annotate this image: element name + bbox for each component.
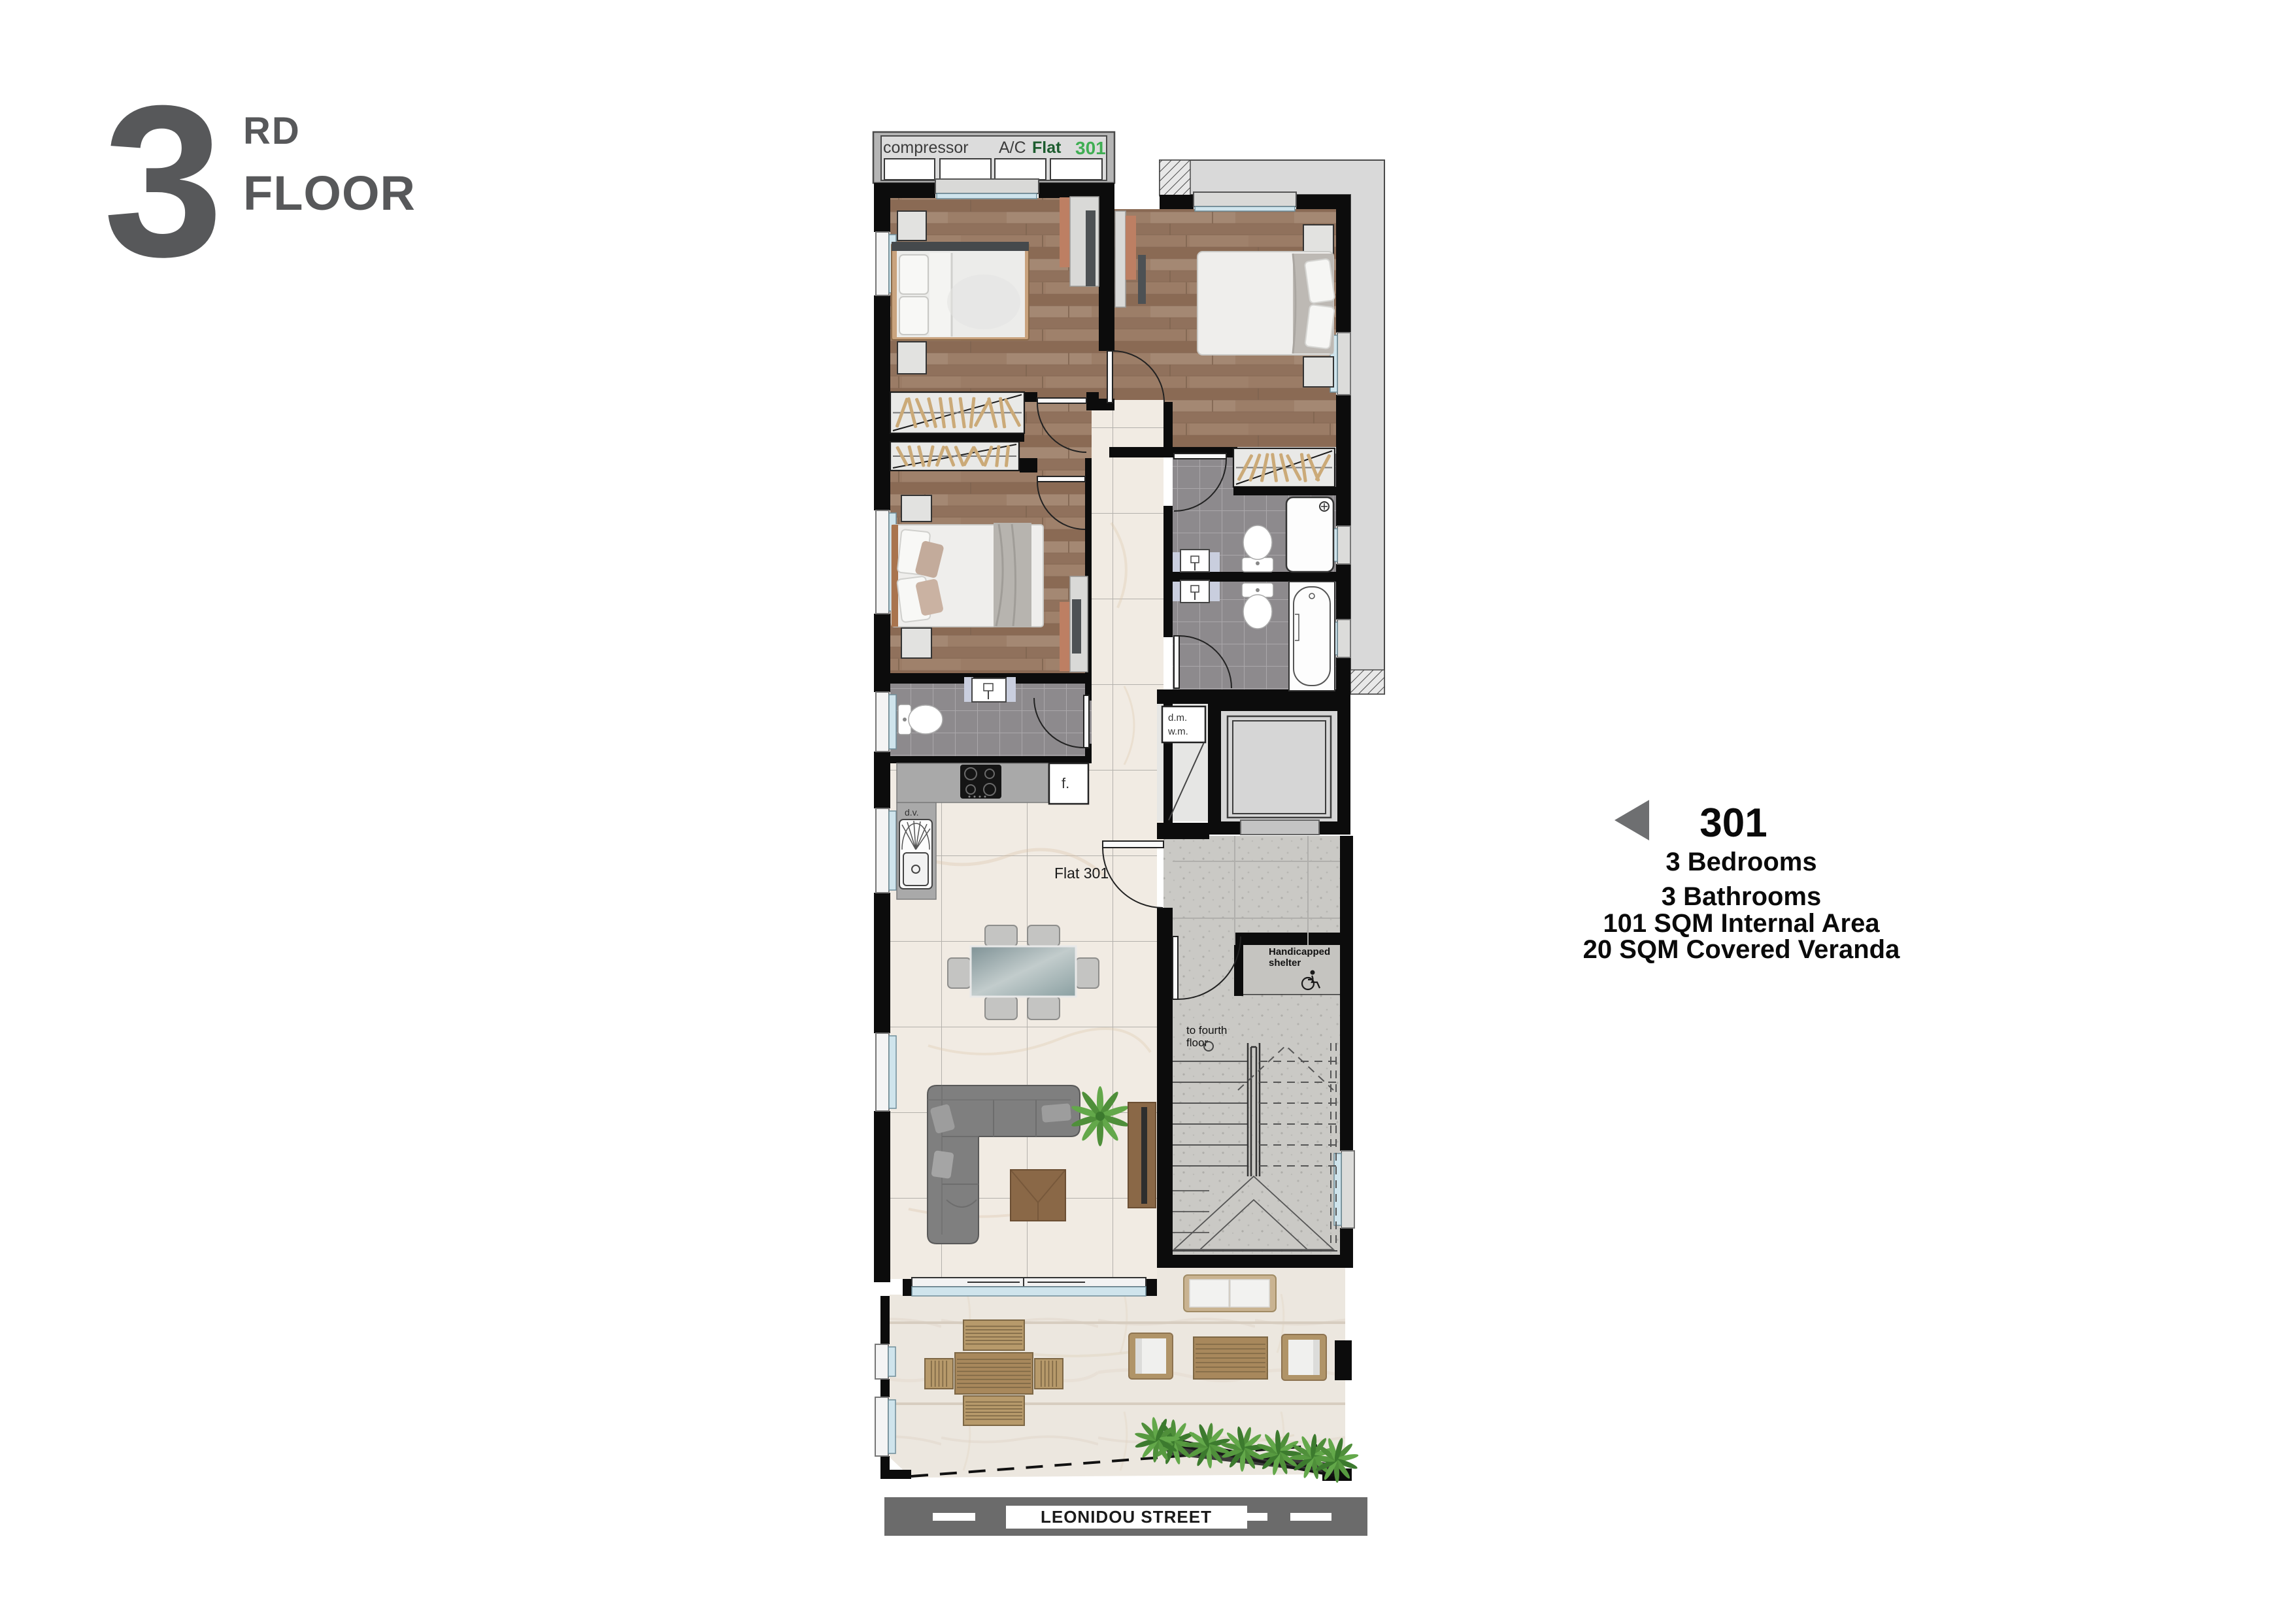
svg-text:301: 301 [1699, 801, 1767, 846]
svg-text:A/C: A/C [999, 139, 1026, 157]
svg-text:Handicapped: Handicapped [1269, 946, 1330, 957]
svg-text:f.: f. [1062, 775, 1069, 791]
svg-text:to fourth: to fourth [1186, 1024, 1227, 1036]
svg-text:d.m.: d.m. [1168, 712, 1187, 723]
svg-text:3: 3 [103, 60, 224, 301]
svg-text:shelter: shelter [1269, 957, 1301, 969]
svg-text:101 SQM Internal Area: 101 SQM Internal Area [1603, 909, 1880, 938]
svg-text:compressor: compressor [883, 139, 969, 157]
svg-text:20 SQM Covered Veranda: 20 SQM Covered Veranda [1583, 935, 1900, 964]
svg-text:3 Bathrooms: 3 Bathrooms [1662, 882, 1822, 911]
svg-text:Flat: Flat [1032, 139, 1062, 157]
svg-text:3 Bedrooms: 3 Bedrooms [1665, 848, 1816, 876]
svg-text:RD: RD [243, 110, 301, 152]
svg-text:Flat 301: Flat 301 [1054, 865, 1109, 882]
svg-text:w.m.: w.m. [1167, 726, 1188, 737]
svg-text:LEONIDOU STREET: LEONIDOU STREET [1041, 1507, 1212, 1527]
svg-text:d.v.: d.v. [905, 807, 919, 818]
svg-text:FLOOR: FLOOR [243, 166, 416, 220]
svg-text:301: 301 [1075, 138, 1106, 158]
